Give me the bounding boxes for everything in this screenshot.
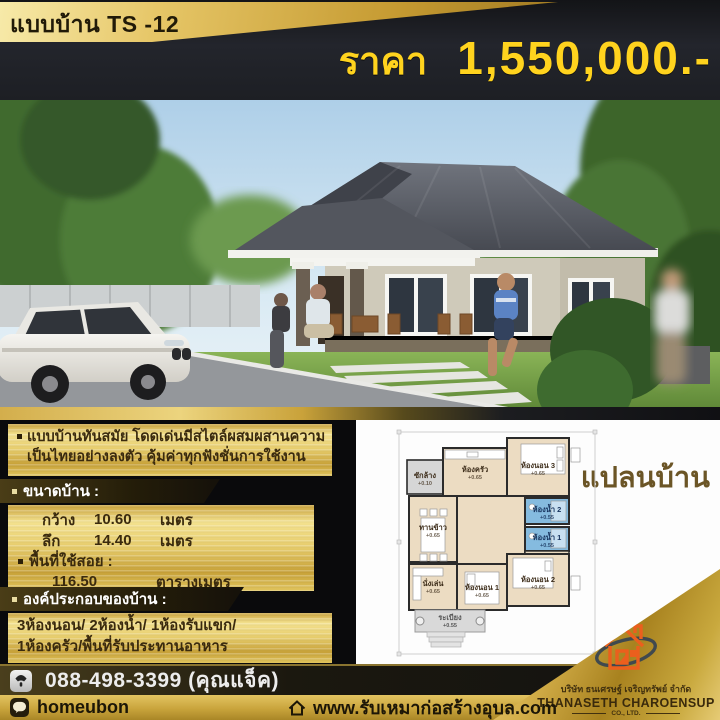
svg-text:+0.55: +0.55 bbox=[540, 515, 554, 521]
room-label: ระเบียง bbox=[438, 613, 462, 622]
house-render-illustration bbox=[0, 100, 720, 420]
room-label: ซักล้าง bbox=[414, 471, 436, 480]
size-row-width: กว้าง 10.60 เมตร bbox=[8, 509, 314, 530]
svg-text:+0.65: +0.65 bbox=[426, 533, 440, 539]
components-line2: 1ห้องครัว/พื้นที่รับประทานอาหาร bbox=[17, 636, 323, 657]
porch-steps bbox=[427, 632, 465, 647]
description-panel: แบบบ้านทันสมัย โดดเด่นมีสไตล์ผสมผสานความ… bbox=[8, 424, 332, 476]
size-row-depth: ลึก 14.40 เมตร bbox=[8, 530, 314, 551]
size-panel: กว้าง 10.60 เมตร ลึก 14.40 เมตร พื้นที่ใ… bbox=[8, 505, 314, 591]
room-label: นั่งเล่น bbox=[422, 577, 444, 588]
phone-number: 088-498-3399 (คุณแจ็ค) bbox=[45, 664, 279, 697]
website-url: www.รับเหมาก่อสร้างอุบล.com bbox=[313, 693, 557, 720]
info-column: แบบบ้านทันสมัย โดดเด่นมีสไตล์ผสมผสานความ… bbox=[0, 420, 356, 664]
bullet bbox=[17, 434, 22, 439]
room-label: ห้องน้ำ 1 bbox=[533, 531, 562, 542]
room-label: ห้องนอน 3 bbox=[521, 461, 555, 470]
description-line1: แบบบ้านทันสมัย โดดเด่นมีสไตล์ผสมผสานความ bbox=[17, 427, 323, 447]
footer-gold-content: homeubon www.รับเหมาก่อสร้างอุบล.com bbox=[0, 695, 720, 720]
svg-text:+0.65: +0.65 bbox=[468, 475, 482, 481]
house-render-photo bbox=[0, 100, 720, 420]
bullet bbox=[12, 597, 17, 602]
room-label: ห้องนอน 2 bbox=[521, 575, 555, 584]
bullet bbox=[18, 559, 23, 564]
house-ad-poster: แบบบ้าน TS -12 ราคา 1,550,000.- bbox=[0, 0, 720, 720]
size-section-header: ขนาดบ้าน : bbox=[0, 479, 220, 503]
svg-text:+0.55: +0.55 bbox=[540, 543, 554, 549]
porch-column bbox=[416, 617, 424, 625]
model-label: แบบบ้าน TS -12 bbox=[10, 7, 179, 43]
price-prefix: ราคา bbox=[339, 30, 428, 91]
room-label: ห้องครัว bbox=[462, 465, 488, 474]
room-label: ทานข้าว bbox=[419, 523, 447, 532]
line-id-text: homeubon bbox=[37, 697, 129, 718]
svg-text:+0.55: +0.55 bbox=[443, 623, 457, 629]
line-app-icon bbox=[10, 698, 29, 717]
gold-divider-strip bbox=[0, 407, 720, 420]
components-header-label: องค์ประกอบของบ้าน : bbox=[23, 587, 167, 611]
porch-column bbox=[476, 617, 484, 625]
logo-accent bbox=[630, 650, 637, 657]
price: ราคา 1,550,000.- bbox=[339, 30, 712, 91]
components-line1: 3ห้องนอน/ 2ห้องน้ำ/ 1ห้องรับแขก/ bbox=[17, 615, 323, 636]
size-header-label: ขนาดบ้าน : bbox=[23, 479, 99, 503]
room-label: ห้องน้ำ 2 bbox=[533, 503, 562, 514]
header-bar: แบบบ้าน TS -12 ราคา 1,550,000.- bbox=[0, 0, 720, 100]
home-icon bbox=[287, 699, 307, 717]
bullet bbox=[12, 489, 17, 494]
svg-text:+0.65: +0.65 bbox=[531, 585, 545, 591]
description-line2: เป็นไทยอย่างลงตัว คุ้มค่าทุกฟังชั่นการใช… bbox=[17, 447, 323, 467]
floor-plan-drawing: ซักล้าง +0.10 ห้องครัว +0.65 ห้องนอน 3 +… bbox=[395, 426, 607, 658]
components-panel: 3ห้องนอน/ 2ห้องน้ำ/ 1ห้องรับแขก/ 1ห้องคร… bbox=[8, 613, 332, 663]
svg-text:+0.65: +0.65 bbox=[475, 593, 489, 599]
phone-icon bbox=[10, 670, 32, 692]
components-section-header: องค์ประกอบของบ้าน : bbox=[0, 587, 244, 611]
area-label-row: พื้นที่ใช้สอย : bbox=[8, 551, 314, 571]
room-label: ห้องนอน 1 bbox=[465, 583, 499, 592]
website-group: www.รับเหมาก่อสร้างอุบล.com bbox=[287, 693, 557, 720]
company-name-thai: บริษัท ธนเศรษฐ์ เจริญทรัพย์ จำกัด bbox=[537, 682, 715, 696]
svg-text:+0.65: +0.65 bbox=[426, 589, 440, 595]
svg-text:+0.65: +0.65 bbox=[531, 471, 545, 477]
price-value: 1,550,000.- bbox=[457, 31, 712, 85]
svg-text:+0.10: +0.10 bbox=[418, 481, 432, 487]
